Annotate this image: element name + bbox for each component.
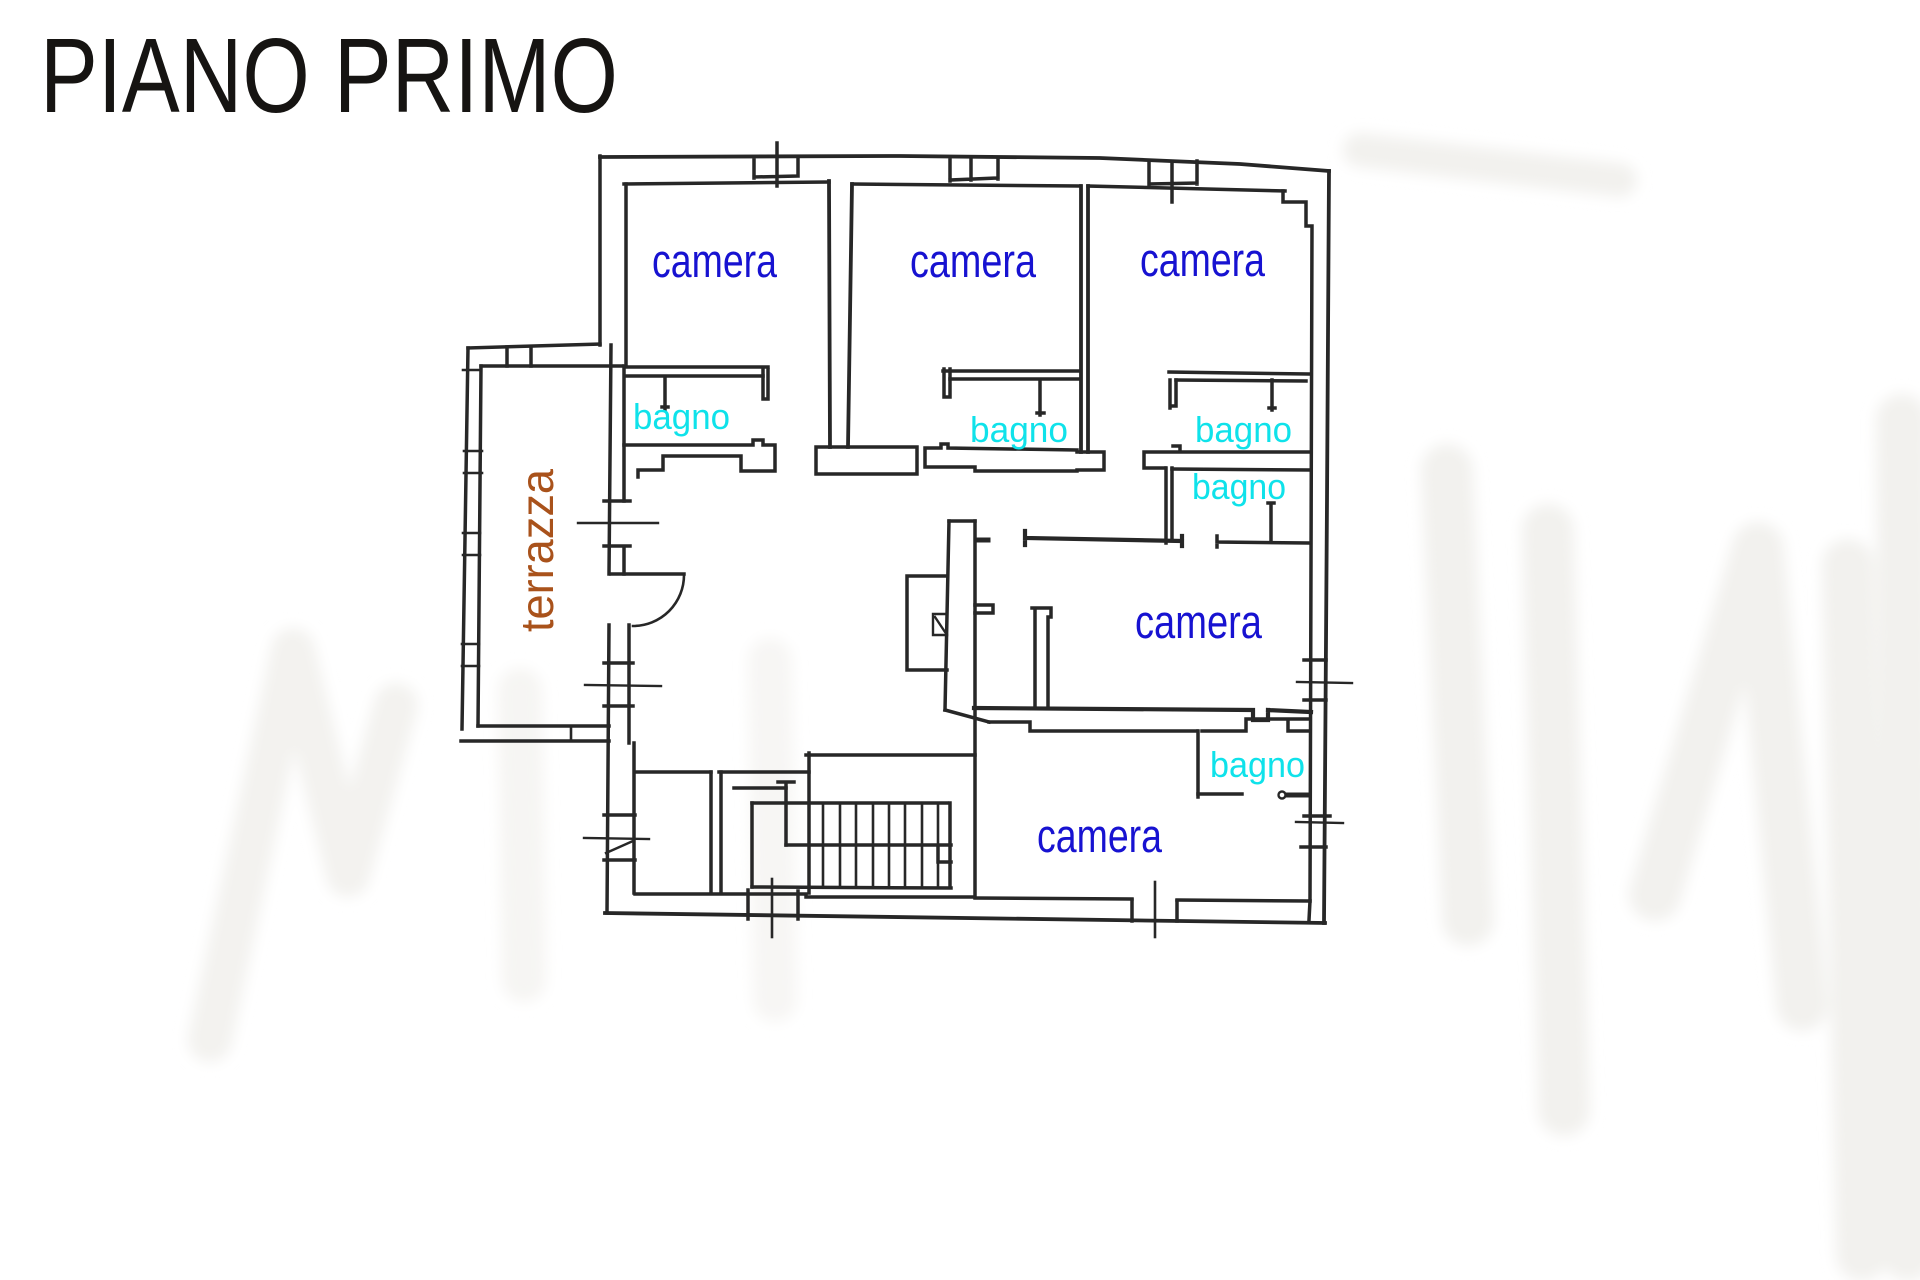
svg-text:camera: camera [1140, 233, 1266, 286]
svg-text:PIANO PRIMO: PIANO PRIMO [40, 17, 618, 135]
svg-text:bagno: bagno [1192, 466, 1286, 507]
svg-text:camera: camera [910, 234, 1037, 287]
svg-text:camera: camera [1037, 809, 1163, 862]
svg-text:bagno: bagno [970, 409, 1068, 450]
svg-text:bagno: bagno [1195, 409, 1292, 450]
svg-text:terrazza: terrazza [511, 469, 563, 632]
svg-text:bagno: bagno [633, 396, 730, 437]
svg-text:camera: camera [652, 234, 778, 287]
svg-text:camera: camera [1135, 595, 1263, 648]
svg-text:bagno: bagno [1210, 744, 1305, 785]
